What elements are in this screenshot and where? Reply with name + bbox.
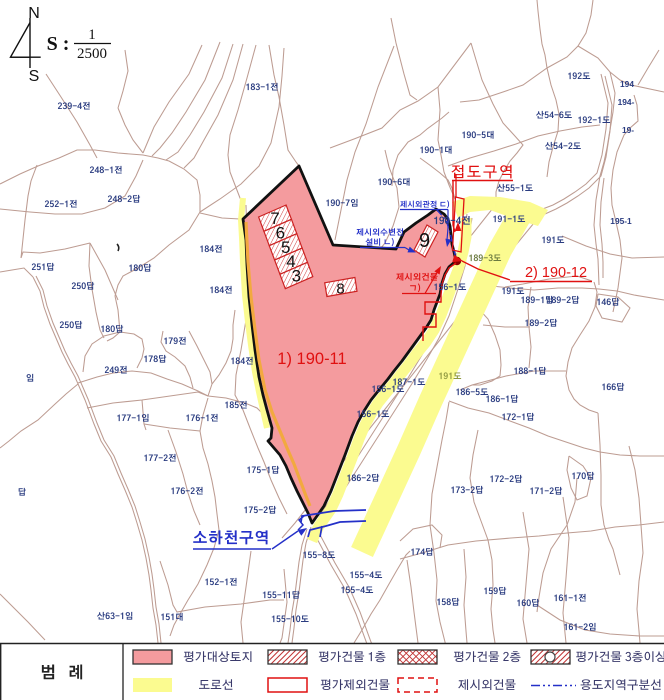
svg-text:9: 9 bbox=[419, 230, 430, 252]
svg-text:S :: S : bbox=[47, 33, 70, 55]
svg-text:194: 194 bbox=[620, 79, 634, 89]
svg-text:2) 190-12: 2) 190-12 bbox=[525, 265, 587, 281]
svg-text:2500: 2500 bbox=[77, 46, 107, 62]
svg-text:195-1: 195-1 bbox=[610, 216, 632, 226]
svg-text:1) 190-11: 1) 190-11 bbox=[277, 350, 346, 368]
svg-text:19-: 19- bbox=[622, 125, 634, 135]
svg-text:N: N bbox=[28, 5, 40, 22]
svg-text:194-: 194- bbox=[618, 97, 635, 107]
svg-text:3: 3 bbox=[292, 267, 301, 286]
svg-text:1: 1 bbox=[88, 27, 96, 43]
svg-text:S: S bbox=[29, 68, 40, 85]
svg-text:8: 8 bbox=[336, 281, 344, 298]
